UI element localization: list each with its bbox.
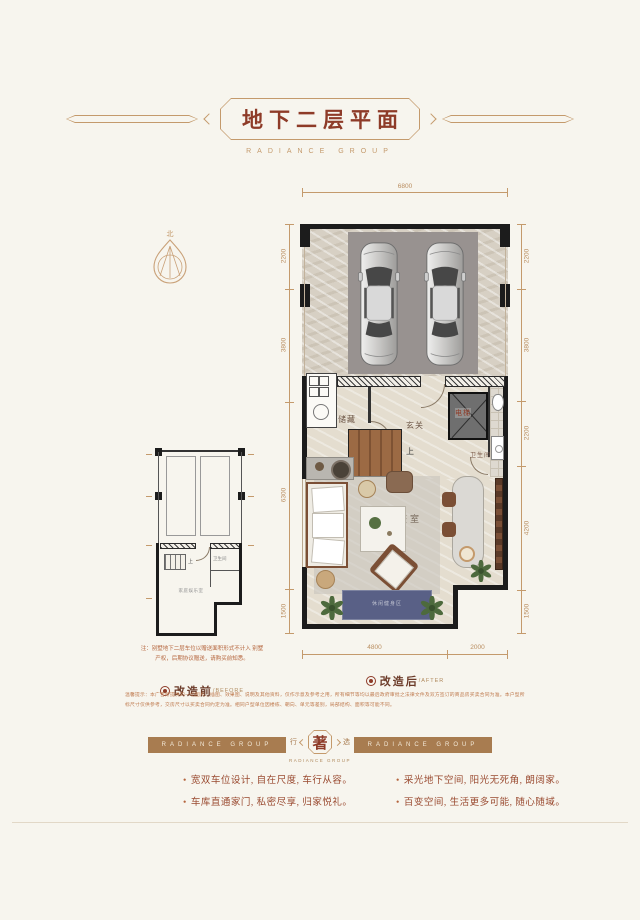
wall-thin [158,450,242,452]
dim-right-value: 4200 [524,521,531,535]
console-table [306,457,354,480]
dim-tick [285,633,294,634]
wall-line [210,549,211,587]
notch-cutout [458,590,508,634]
title-plaque: 地下二层平面 [220,98,420,140]
hatched-wall [160,543,196,549]
car-icon [358,238,400,370]
chevron-left-icon [203,113,214,124]
banner-right-text: RADIANCE GROUP [354,737,492,753]
badge-center-char: 著 [309,731,331,753]
bullet-text: 宽双车位设计, 自在尺度, 车行从容。 [191,776,353,786]
dim-right-value: 2200 [524,426,531,440]
wall-line [241,452,242,544]
plant-icon [420,596,444,620]
door-arc [196,547,210,561]
wall [156,633,217,636]
bullet-text: 车库直通家门, 私密尽享, 归家悦礼。 [191,798,353,808]
wall [503,376,508,590]
bullet-dot: • [396,798,400,808]
after-label-en: /AFTER [419,678,445,684]
badge-chevron-right-icon [334,738,341,745]
stairs-up-label-small: 上 [188,558,193,565]
parking-space [200,456,230,536]
car-icon [424,238,466,370]
family-room-label: 家庭娱乐室 [166,588,216,594]
plant-icon [320,596,344,620]
after-marker-icon [366,676,376,686]
dim-tick [248,454,254,455]
badge-frame: 著 [308,730,332,754]
dim-tick [507,650,508,659]
dim-tick [285,289,294,290]
badge-subtext: RADIANCE GROUP [280,758,360,763]
staircase [348,429,402,477]
dim-tick [248,496,254,497]
badge-right-char: 选 [343,737,350,747]
bullet-item: •宽双车位设计, 自在尺度, 车行从容。 [183,772,352,786]
coffee-table [360,506,406,552]
wall-pillar [500,224,510,247]
brand-badge: 行 著 选 [286,729,354,755]
hatched-wall [445,376,505,387]
bullet-text: 百变空间, 生活更多可能, 随心随域。 [404,798,566,808]
dim-tick [517,590,526,591]
bathroom-label: 卫生间 [470,450,491,459]
badge-chevron-left-icon [299,738,306,745]
dim-tick [146,598,152,599]
dim-left-value: 6300 [281,488,288,502]
staircase-small [164,554,186,570]
dim-tick [517,289,526,290]
wall-pillar [300,284,310,307]
dim-right-value: 3800 [524,338,531,352]
compass-icon: 北 [146,226,194,288]
page-title: 地下二层平面 [236,104,404,134]
ottoman [386,471,413,493]
garage-side-line [304,247,305,376]
after-label-row: 改造后/AFTER [345,672,465,690]
dim-tick [285,589,294,590]
bathroom-label-small: 卫生间 [213,556,227,562]
dim-tick [146,454,152,455]
bullet-item: •采光地下空间, 阳光无死角, 朗阔家。 [396,772,565,786]
dim-bottom-value: 2000 [447,644,508,651]
wall-line [210,570,241,571]
rug-zone-label: 休闲健身区 [342,600,432,607]
dim-tick [517,466,526,467]
wall [239,543,242,605]
hatched-wall [210,543,242,549]
header-left-rule [66,115,198,123]
dim-tick [146,545,152,546]
wall-line [158,452,159,544]
bullet-text: 采光地下空间, 阳光无死角, 朗阔家。 [404,776,566,786]
wall [453,585,508,590]
dim-tick [285,402,294,403]
foyer-label: 玄关 [406,420,424,431]
wall [302,624,458,629]
garage-side-line [505,247,506,376]
toilet [492,394,504,411]
dim-tick [517,401,526,402]
dim-line-left [289,224,290,634]
serving-tray [358,480,376,498]
dim-tick [517,633,526,634]
header-right-rule [442,115,574,123]
washbasin [491,436,504,460]
storage-label: 储藏 [338,414,356,425]
wall [214,602,242,605]
dim-left-value: 3800 [281,338,288,352]
wall [453,585,458,629]
chevron-right-icon [425,113,436,124]
dim-tick [447,650,448,659]
dim-right-value: 2200 [524,249,531,263]
wall-pillar [300,224,310,247]
floorplan-after: 上 电梯 卫生间 储藏 玄关 红酒品鉴室 休闲健身区 [302,224,508,634]
dim-tick [146,496,152,497]
interior-wall [488,387,490,457]
bar-stool [442,492,456,507]
parking-space [166,456,196,536]
before-plan-note: 注：别墅地下二层车位以赠送面积形式不计入 别墅产权，后期协议赠送，请购买前知悉。 [140,645,264,665]
bullet-dot: • [396,776,400,786]
kitchen-counter [306,373,337,428]
wine-cabinet [495,478,503,570]
dim-left-value: 1500 [281,604,288,618]
after-label: 改造后 [380,676,419,688]
stairs-up-label: 上 [406,446,415,457]
sofa [306,482,348,568]
disclaimer-text: 温馨提示：本广告所提供的一切图片、插图、效果图、说明及其他资料，仅作示意及参考之… [125,691,525,710]
bar-stool [442,522,456,537]
bullet-dot: • [183,798,187,808]
footer-divider [12,822,628,823]
dim-tick [302,650,303,659]
plant-icon [470,560,492,582]
dim-top-value: 6800 [302,183,508,190]
hatched-wall [337,376,421,387]
bullet-item: •车库直通家门, 私密尽享, 归家悦礼。 [183,794,352,808]
dim-bottom-value: 4800 [302,644,447,651]
dim-tick [285,224,294,225]
header-subtitle: RADIANCE GROUP [0,148,640,155]
elevator-label: 电梯 [455,408,471,418]
fitness-rug: 休闲健身区 [342,590,432,620]
wall [302,224,508,229]
floorplan-before: 上 卫生间 家庭娱乐室 [152,448,248,644]
dim-tick [517,224,526,225]
wall [156,543,159,636]
header-ornament: 地下二层平面 [0,98,640,140]
dim-tick [248,545,254,546]
dim-right-value: 1500 [524,604,531,618]
banner-left-text: RADIANCE GROUP [148,737,286,753]
bullet-dot: • [183,776,187,786]
svg-text:北: 北 [167,230,174,238]
interior-wall [368,387,371,423]
dim-left-value: 2200 [281,249,288,263]
bullet-item: •百变空间, 生活更多可能, 随心随域。 [396,794,565,808]
wall [302,567,307,629]
dim-line-right [521,224,522,634]
dim-line-top [302,192,508,193]
dim-line-bottom [302,654,508,655]
round-side-table [316,570,335,589]
wall [214,602,217,636]
badge-left-char: 行 [290,737,297,747]
